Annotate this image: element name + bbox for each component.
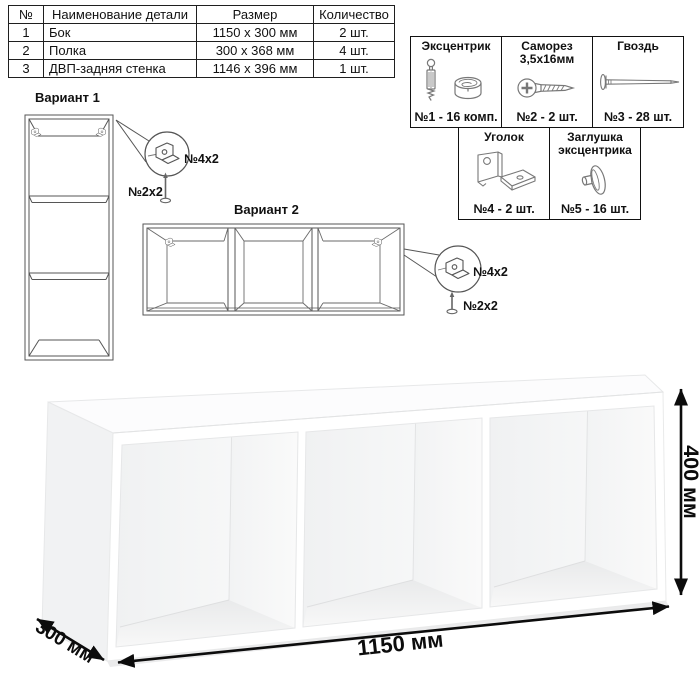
corner-bracket-icon	[31, 128, 41, 137]
hardware-cell-cam-lock: Эксцентрик №1 - 16 комп.	[411, 37, 502, 127]
screw-qty-label: №2x2	[128, 185, 163, 199]
table-row: 1 Бок 1150 x 300 мм 2 шт.	[9, 24, 395, 42]
part-name-cell: Полка	[44, 42, 197, 60]
hardware-count: №4 - 2 шт.	[473, 202, 534, 216]
part-number-cell: 2	[9, 42, 44, 60]
hardware-count: №1 - 16 комп.	[414, 110, 497, 124]
callout-2: №4x2 №2x2	[404, 246, 508, 314]
table-row: 2 Полка 300 x 368 мм 4 шт.	[9, 42, 395, 60]
part-size-cell: 1146 x 396 мм	[197, 60, 314, 78]
hardware-title: Уголок	[484, 131, 524, 144]
hardware-subtitle: эксцентрика	[558, 144, 632, 157]
hardware-count: №5 - 16 шт.	[561, 202, 629, 216]
hardware-panel-row2: Уголок №4 - 2 шт. Заглушка эксцентрика	[458, 127, 641, 220]
callout-1: №4x2 №2x2	[116, 120, 219, 203]
screw-qty-label: №2x2	[463, 299, 498, 313]
height-dimension-label: 400 мм	[679, 445, 700, 519]
assembled-unit-drawing: 400 мм 1150 мм 300 мм	[0, 370, 700, 690]
part-qty-cell: 1 шт.	[314, 60, 395, 78]
hardware-panel-row1: Эксцентрик №1 - 16 комп. Саморез 3,5x16м…	[410, 36, 684, 128]
nail-icon	[596, 53, 680, 110]
variant2-title: Вариант 2	[234, 202, 299, 217]
corner-bracket-icon	[468, 144, 540, 202]
part-size-cell: 1150 x 300 мм	[197, 24, 314, 42]
table-row: 3 ДВП-задняя стенка 1146 x 396 мм 1 шт.	[9, 60, 395, 78]
hardware-cell-cap: Заглушка эксцентрика №5 - 16 шт.	[550, 128, 640, 219]
header-quantity: Количество	[314, 6, 395, 24]
hardware-title: Гвоздь	[617, 40, 659, 53]
hardware-subtitle: 3,5x16мм	[520, 53, 574, 66]
part-qty-cell: 2 шт.	[314, 24, 395, 42]
hardware-title: Заглушка	[567, 131, 623, 144]
hardware-count: №3 - 28 шт.	[604, 110, 672, 124]
part-name-cell: ДВП-задняя стенка	[44, 60, 197, 78]
part-number-cell: 1	[9, 24, 44, 42]
header-part-name: Наименование детали	[44, 6, 197, 24]
corner-bracket-icon	[96, 128, 106, 137]
part-size-cell: 300 x 368 мм	[197, 42, 314, 60]
parts-table-header-row: № Наименование детали Размер Количество	[9, 6, 395, 24]
hardware-count: №2 - 2 шт.	[516, 110, 577, 124]
cam-lock-icon	[416, 53, 496, 110]
part-qty-cell: 4 шт.	[314, 42, 395, 60]
hardware-title: Саморез	[521, 40, 573, 53]
hardware-cell-nail: Гвоздь №3 - 28 шт.	[593, 37, 683, 127]
hardware-cell-screw: Саморез 3,5x16мм №2 - 2 шт.	[502, 37, 593, 127]
bracket-qty-label: №4x2	[184, 152, 219, 166]
variant1-title: Вариант 1	[35, 90, 100, 105]
hardware-title: Эксцентрик	[422, 40, 491, 53]
bracket-qty-label: №4x2	[473, 265, 508, 279]
part-number-cell: 3	[9, 60, 44, 78]
cap-icon	[577, 158, 613, 202]
variant-2-drawing: №4x2 №2x2	[138, 218, 518, 320]
part-name-cell: Бок	[44, 24, 197, 42]
hardware-cell-corner-bracket: Уголок №4 - 2 шт.	[459, 128, 550, 219]
screw-icon	[514, 67, 580, 110]
header-size: Размер	[197, 6, 314, 24]
header-number: №	[9, 6, 44, 24]
parts-table: № Наименование детали Размер Количество …	[8, 5, 395, 78]
